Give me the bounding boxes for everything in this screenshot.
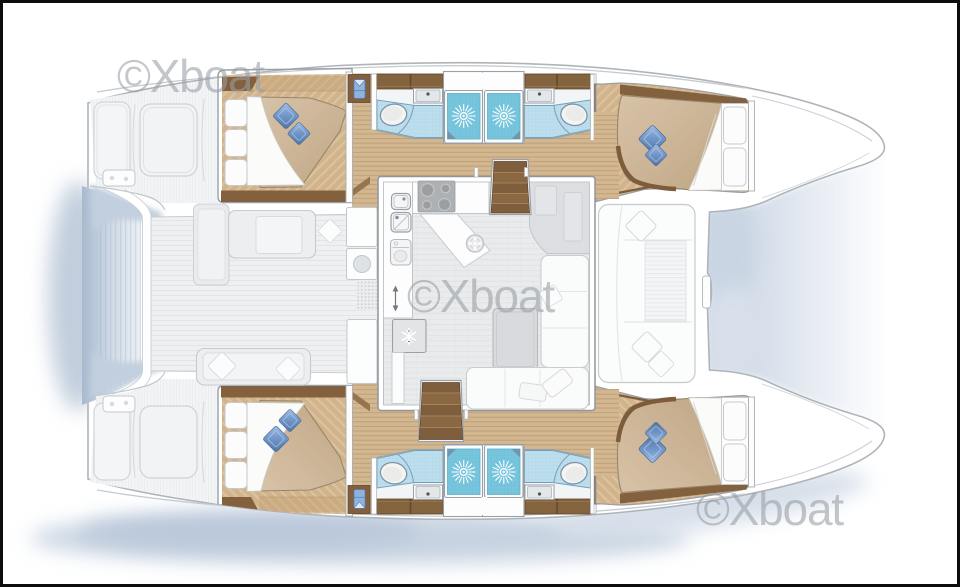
svg-text:©Xboat: ©Xboat (407, 270, 555, 322)
svg-text:©Xboat: ©Xboat (696, 483, 844, 535)
svg-text:©Xboat: ©Xboat (117, 50, 265, 102)
